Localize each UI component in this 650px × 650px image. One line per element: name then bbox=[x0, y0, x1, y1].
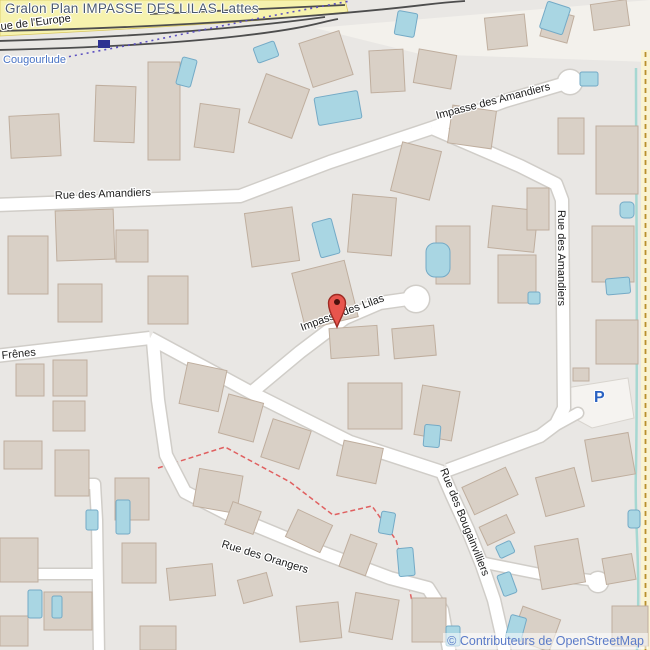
building bbox=[218, 394, 263, 442]
swimming-pool bbox=[86, 510, 98, 530]
building bbox=[0, 538, 38, 582]
swimming-pool bbox=[628, 510, 640, 528]
parking-icon: P bbox=[594, 389, 605, 406]
swimming-pool bbox=[397, 547, 415, 576]
building bbox=[9, 114, 61, 159]
building bbox=[166, 564, 215, 601]
swimming-pool bbox=[394, 10, 418, 37]
railway-marker bbox=[98, 40, 110, 48]
building bbox=[602, 554, 636, 585]
building bbox=[337, 440, 384, 484]
building bbox=[179, 362, 227, 411]
building bbox=[55, 209, 115, 261]
building bbox=[237, 573, 272, 604]
building bbox=[573, 368, 589, 381]
page-title: Gralon Plan IMPASSE DES LILAS Lattes bbox=[5, 1, 259, 16]
swimming-pool bbox=[426, 243, 450, 277]
swimming-pool bbox=[314, 90, 362, 125]
swimming-pool bbox=[116, 500, 130, 534]
building bbox=[585, 432, 636, 481]
building bbox=[392, 325, 436, 359]
building bbox=[122, 543, 156, 583]
swimming-pool bbox=[253, 41, 279, 64]
swimming-pool bbox=[423, 424, 441, 447]
building bbox=[299, 31, 353, 88]
building bbox=[244, 207, 299, 267]
building bbox=[391, 142, 442, 200]
building bbox=[55, 450, 89, 496]
building bbox=[558, 118, 584, 154]
building bbox=[116, 230, 148, 262]
building bbox=[369, 49, 405, 93]
building bbox=[527, 188, 549, 230]
map-graphic: ue de l'Europe Cougourlude Rue des Amand… bbox=[0, 0, 650, 650]
building bbox=[0, 616, 28, 646]
map-canvas[interactable]: Gralon Plan IMPASSE DES LILAS Lattes bbox=[0, 0, 650, 650]
building bbox=[596, 126, 638, 194]
building bbox=[348, 194, 397, 256]
building bbox=[535, 539, 586, 590]
swimming-pool bbox=[580, 72, 598, 86]
building bbox=[484, 14, 527, 50]
building bbox=[412, 598, 446, 642]
building bbox=[329, 325, 379, 358]
building bbox=[248, 74, 309, 139]
building bbox=[94, 85, 136, 142]
map-shape bbox=[334, 299, 340, 305]
cul-de-sac-lilas bbox=[403, 286, 429, 312]
building bbox=[296, 602, 342, 642]
building bbox=[590, 0, 629, 30]
building bbox=[58, 284, 102, 322]
building bbox=[349, 592, 399, 639]
swimming-pool bbox=[28, 590, 42, 618]
swimming-pool bbox=[52, 596, 62, 618]
building bbox=[140, 626, 176, 650]
street-label-frenes: Frênes bbox=[1, 346, 37, 362]
building bbox=[53, 360, 87, 396]
cul-de-sac-amandiers bbox=[558, 70, 582, 94]
building bbox=[44, 592, 92, 630]
swimming-pool bbox=[495, 540, 515, 559]
building bbox=[8, 236, 48, 294]
swimming-pool bbox=[605, 277, 630, 295]
building bbox=[348, 383, 402, 429]
building bbox=[148, 62, 180, 160]
building bbox=[16, 364, 44, 396]
osm-attribution-link[interactable]: © Contributeurs de OpenStreetMap bbox=[443, 633, 648, 649]
street-label-rue-des-amandiers-east: Rue des Amandiers bbox=[555, 210, 567, 306]
building bbox=[148, 276, 188, 324]
building bbox=[596, 320, 638, 364]
building bbox=[4, 441, 42, 469]
swimming-pool bbox=[312, 218, 341, 258]
building bbox=[536, 468, 585, 517]
building bbox=[413, 49, 456, 89]
stream-label-cougourlude: Cougourlude bbox=[3, 54, 66, 66]
building bbox=[194, 103, 240, 152]
swimming-pool bbox=[176, 57, 198, 88]
building bbox=[462, 467, 518, 514]
swimming-pool bbox=[528, 292, 540, 304]
swimming-pool bbox=[620, 202, 634, 218]
swimming-pool bbox=[378, 511, 396, 535]
building bbox=[592, 226, 634, 282]
building bbox=[53, 401, 85, 431]
